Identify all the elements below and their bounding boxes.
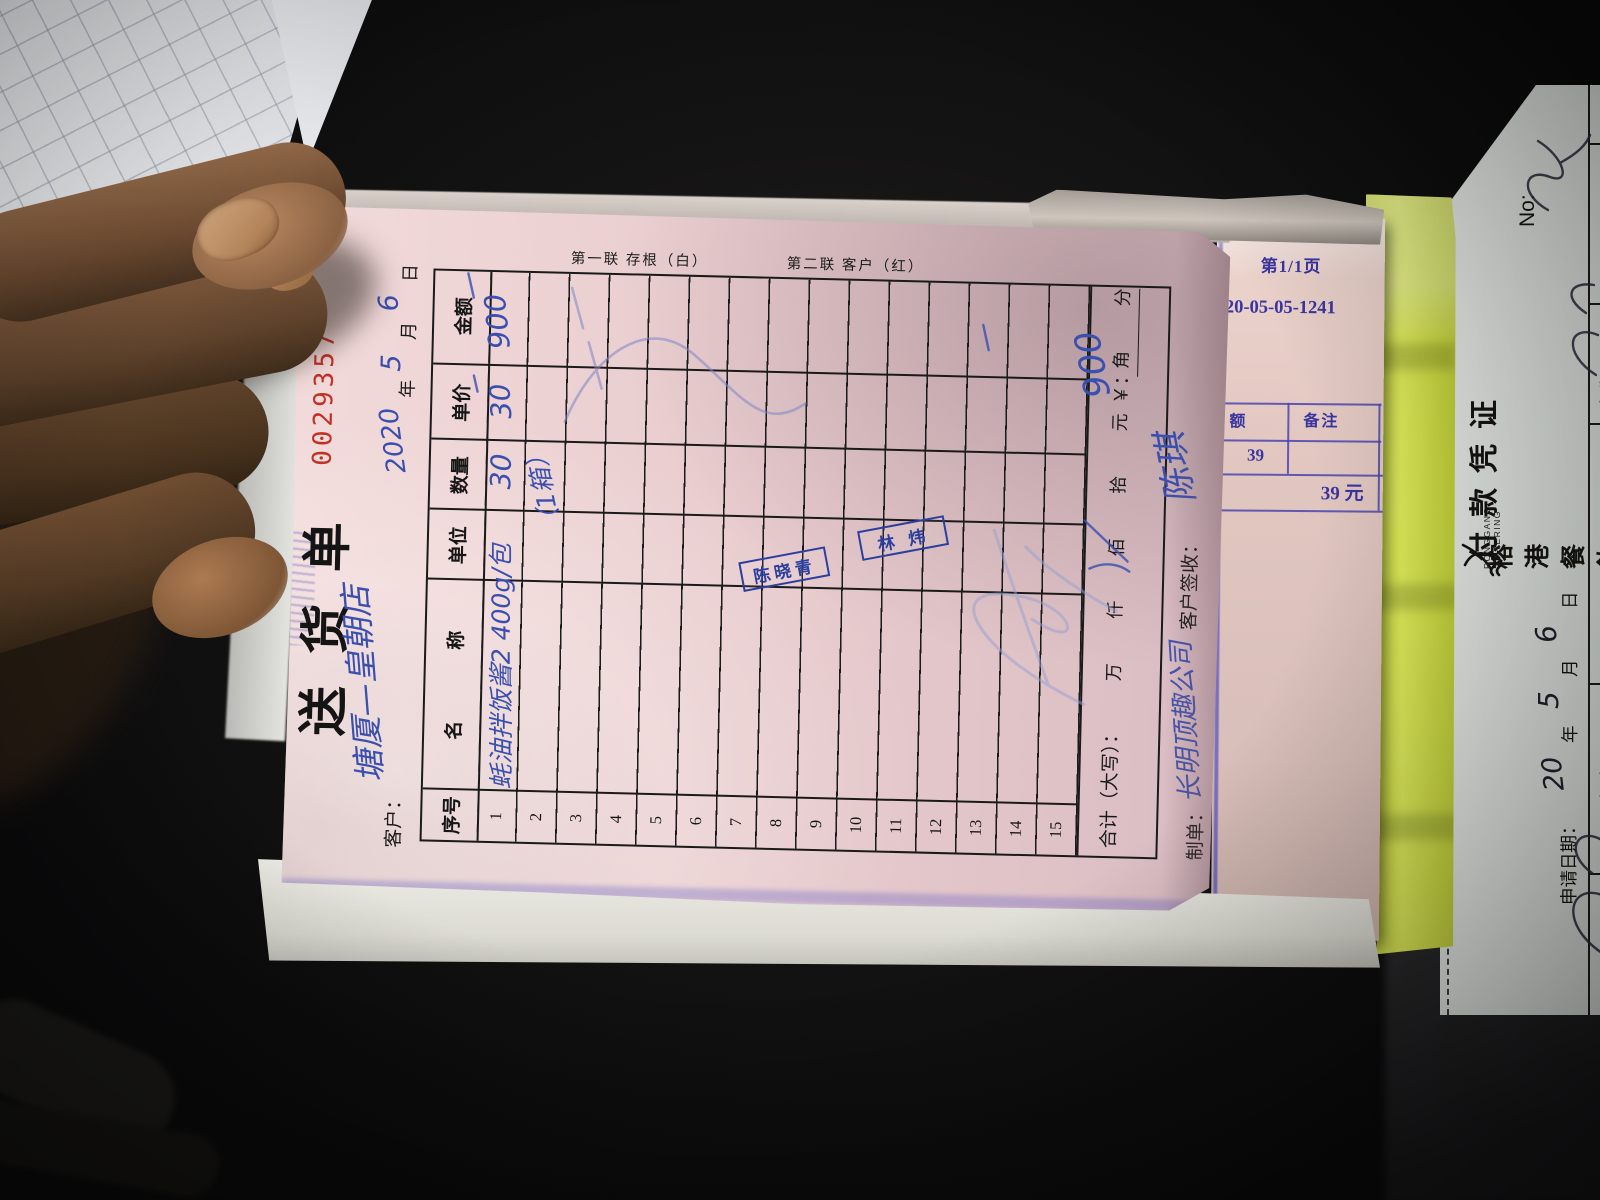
slip-amount-column: 额 [1229,407,1245,431]
pen-scribbles [281,203,1233,916]
slip-total-value: 39 元 [1321,478,1364,505]
slip-table-line [1221,509,1383,512]
slip-table-divider [1287,403,1290,474]
slip-amount-value: 39 [1247,446,1264,466]
slip-page-number: 第1/1页 [1261,252,1322,278]
delivery-note-sheet: 送货单 0029357 客户： 塘厦—皇朝店 2020 年 5 月 6 日 第一… [281,203,1233,916]
photo-of-delivery-note-stack: 榕港餐飲 RONGGANG CATERING 付款凭证 No: 申请日期： 20… [0,0,1600,1200]
slip-note-column: 备注 [1303,407,1339,431]
payment-voucher-sheet: 榕港餐飲 RONGGANG CATERING 付款凭证 No: 申请日期： 20… [1440,85,1600,1015]
slip-table-line [1221,439,1381,442]
slip-table-divider [1378,404,1381,511]
printed-summary-slip: 第1/1页 2020-05-05-1241 额 备注 39 39 元 [1211,217,1385,940]
voucher-handwriting-scribbles [1440,85,1600,1015]
hand-holding-papers [0,0,1,1]
slip-table-line [1221,473,1383,476]
slip-table-line [1222,402,1382,405]
